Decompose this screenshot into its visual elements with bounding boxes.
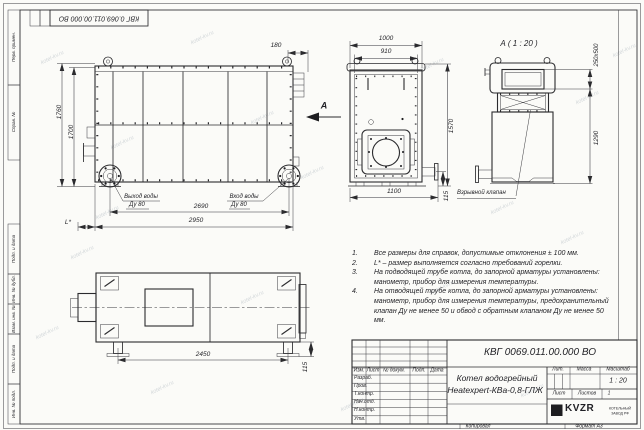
- dim-910: 910: [381, 49, 392, 56]
- dim-1570: 1570: [449, 119, 456, 133]
- drawing-linework: [0, 0, 644, 430]
- margin-label-inv-podl: Инв. № подл.: [12, 390, 17, 418]
- logo-subtext-line2: ЗАВОД РФ: [611, 412, 629, 416]
- margin-label-inv-dubl: Инв. № дубл.: [12, 275, 17, 303]
- note-number: 4.: [352, 287, 374, 325]
- dim-115-top: 115: [303, 362, 310, 372]
- dim-1290: 1290: [594, 131, 601, 145]
- explosion-valve-label: Взрывной клапан: [457, 190, 506, 196]
- header-izm: Изм.: [354, 369, 365, 374]
- view-arrow-label: А: [321, 102, 328, 111]
- row-tkontr: Т.контр.: [354, 392, 374, 397]
- dim-1100: 1100: [387, 189, 401, 196]
- dim-180: 180: [271, 43, 282, 50]
- sheets-value: 1: [608, 392, 611, 397]
- product-name-line1: Котел водогрейный: [457, 374, 538, 383]
- header-podp: Подп.: [412, 369, 425, 374]
- explosion-valve: [498, 93, 549, 112]
- header-list2: Лист: [553, 392, 566, 397]
- note-text: На подводящей трубе котла, до запорной а…: [374, 268, 616, 287]
- header-listov: Листов: [578, 392, 596, 397]
- front-view: [306, 41, 451, 202]
- top-view: [71, 273, 315, 364]
- kvzr-logo-text: KVZR: [565, 404, 594, 414]
- dim-2450: 2450: [196, 352, 210, 359]
- margin-label-podp-data-1: Подп. и дата: [12, 235, 17, 263]
- product-name-line2: Heatexpert-КВа-0,8-ГЛЖ: [447, 386, 542, 395]
- drawing-sheet: kotel-kv.rukotel-kv.rukotel-kv.rukotel-k…: [0, 0, 644, 430]
- top-doc-number: КВГ 0.069.011.00.000 ВО: [59, 15, 139, 22]
- doc-number: КВГ 0069.011.00.000 ВО: [484, 348, 596, 358]
- note-number: 2.: [352, 259, 374, 269]
- inlet-label: Вход воды: [229, 194, 258, 200]
- outlet-dn-label: Ду 80: [129, 202, 145, 208]
- kvzr-logo-mark: [551, 405, 563, 417]
- note-item: 3. На подводящей трубе котла, до запорно…: [352, 268, 616, 287]
- header-massa: Масса: [577, 368, 592, 373]
- notes-block: 1. Все размеры для справок, допустимые о…: [352, 249, 616, 326]
- margin-label-vzam-inv: Взам. инв. №: [12, 305, 17, 333]
- dim-250x500: 250х500: [594, 43, 600, 66]
- header-lit: Лит.: [552, 368, 564, 373]
- dim-1760: 1760: [57, 105, 64, 119]
- dim-1000: 1000: [379, 36, 393, 43]
- dim-2950: 2950: [189, 218, 203, 225]
- header-dokum: № докум.: [383, 369, 405, 374]
- row-nachotd: Нач.отд.: [354, 400, 375, 405]
- margin-label-perv-primen: Перв. примен.: [12, 32, 17, 62]
- note-number: 1.: [352, 249, 374, 259]
- section-view-a: [457, 58, 593, 199]
- note-item: 4. На отводящей трубе котла, до запорной…: [352, 287, 616, 325]
- side-view: [57, 50, 308, 231]
- scale-value: 1 : 20: [609, 378, 627, 385]
- section-title: А ( 1 : 20 ): [500, 40, 537, 48]
- note-text: На отводящей трубе котла, до запорной ар…: [374, 287, 616, 325]
- inlet-dn-label: Ду 80: [231, 202, 247, 208]
- row-razrab: Разраб.: [354, 376, 372, 381]
- header-list: Лист: [367, 369, 380, 374]
- note-number: 3.: [352, 268, 374, 287]
- dim-2690: 2690: [194, 204, 208, 211]
- note-text: L* – размер выполняется согласно требова…: [374, 259, 616, 269]
- logo-subtext-line1: КОТЕЛЬНЫЙ: [609, 407, 631, 411]
- row-utv: Утв.: [354, 417, 365, 422]
- burner-flange: [358, 130, 415, 174]
- row-nkontr: Н.контр.: [354, 408, 375, 413]
- footer-format: Формат А3: [575, 425, 602, 430]
- header-data: Дата: [430, 369, 443, 374]
- note-item: 1. Все размеры для справок, допустимые о…: [352, 249, 616, 259]
- margin-label-sprav-no: Справ. №: [12, 112, 17, 132]
- note-item: 2. L* – размер выполняется согласно треб…: [352, 259, 616, 269]
- dim-1700: 1700: [69, 125, 76, 139]
- row-prov: Пров.: [354, 384, 367, 389]
- footer-kopiroval: Копировал: [466, 425, 491, 430]
- margin-label-podp-data-2: Подп. и дата: [12, 345, 17, 373]
- header-masshtab: Масштаб: [606, 368, 629, 373]
- dim-115-front: 115: [444, 191, 451, 201]
- dim-L: L*: [65, 220, 71, 227]
- outlet-label: Выход воды: [124, 194, 158, 200]
- note-text: Все размеры для справок, допустимые откл…: [374, 249, 616, 259]
